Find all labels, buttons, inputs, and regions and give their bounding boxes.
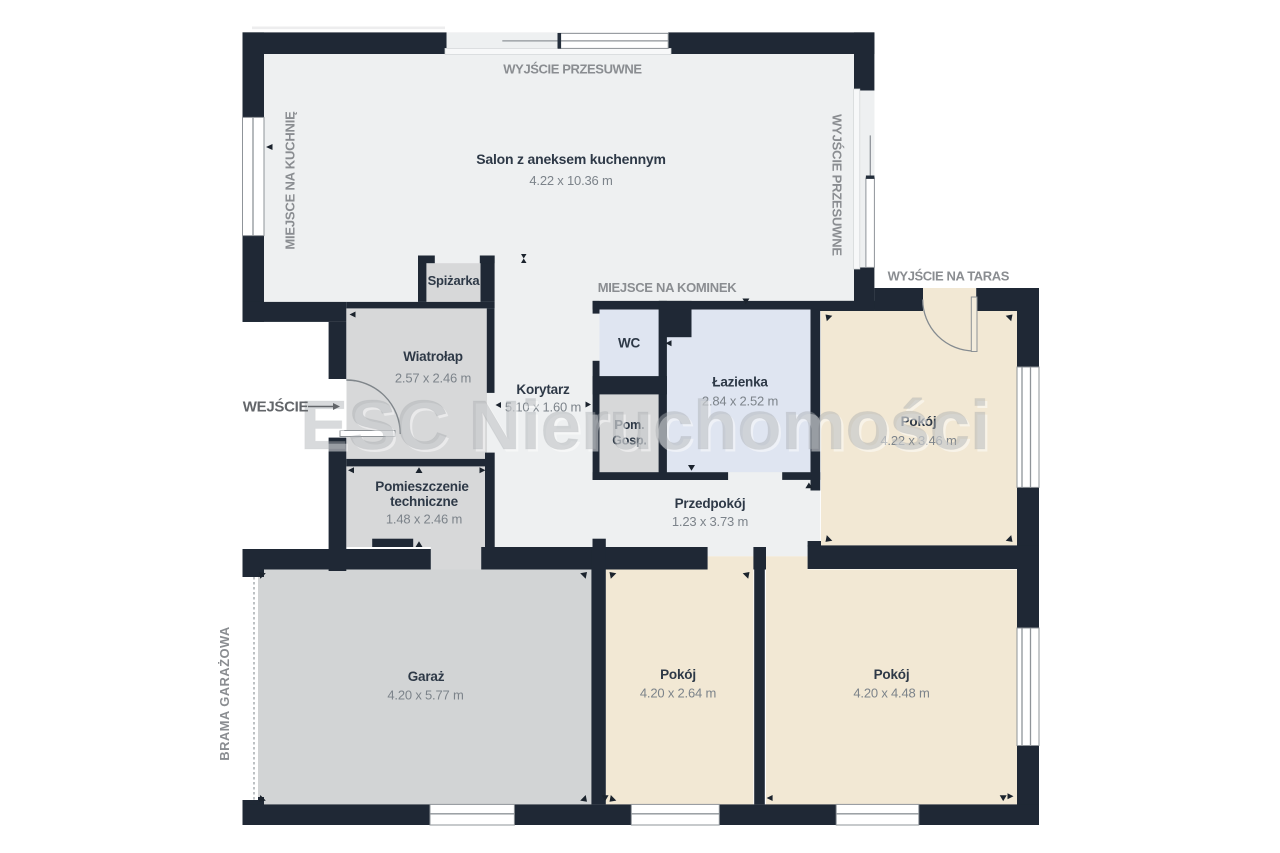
svg-text:2.57 x 2.46 m: 2.57 x 2.46 m	[395, 371, 471, 386]
svg-text:4.22 x 10.36 m: 4.22 x 10.36 m	[529, 173, 612, 188]
svg-text:Salon z aneksem kuchennym: Salon z aneksem kuchennym	[476, 151, 666, 167]
svg-text:Pokój: Pokój	[874, 667, 910, 682]
svg-text:techniczne: techniczne	[390, 494, 458, 509]
svg-text:ESC Nieruchomości: ESC Nieruchomości	[300, 386, 990, 464]
svg-text:Wiatrołap: Wiatrołap	[403, 349, 463, 364]
svg-text:Pomieszczenie: Pomieszczenie	[375, 479, 469, 494]
svg-text:WYJŚCIE PRZESUWNE: WYJŚCIE PRZESUWNE	[503, 62, 642, 77]
svg-text:WC: WC	[618, 336, 641, 351]
svg-text:Garaż: Garaż	[408, 669, 445, 684]
svg-text:MIEJSCE NA KOMINEK: MIEJSCE NA KOMINEK	[598, 280, 737, 295]
svg-text:4.20 x 2.64 m: 4.20 x 2.64 m	[640, 686, 716, 701]
svg-text:Przedpokój: Przedpokój	[675, 496, 746, 511]
svg-text:4.20 x 4.48 m: 4.20 x 4.48 m	[853, 686, 929, 701]
svg-text:4.20 x 5.77 m: 4.20 x 5.77 m	[387, 688, 463, 703]
svg-text:Pokój: Pokój	[660, 667, 696, 682]
svg-text:MIEJSCE NA KUCHNIĘ: MIEJSCE NA KUCHNIĘ	[283, 111, 298, 250]
svg-text:WYJŚCIE NA TARAS: WYJŚCIE NA TARAS	[888, 269, 1010, 284]
svg-text:1.23 x 3.73 m: 1.23 x 3.73 m	[672, 514, 748, 529]
svg-text:1.48 x 2.46 m: 1.48 x 2.46 m	[386, 512, 462, 527]
svg-text:BRAMA GARAŻOWA: BRAMA GARAŻOWA	[217, 626, 232, 761]
svg-text:WEJŚCIE: WEJŚCIE	[243, 398, 309, 416]
svg-text:Spiżarka: Spiżarka	[428, 273, 481, 288]
svg-text:WYJŚCIE PRZESUWNE: WYJŚCIE PRZESUWNE	[830, 114, 845, 256]
